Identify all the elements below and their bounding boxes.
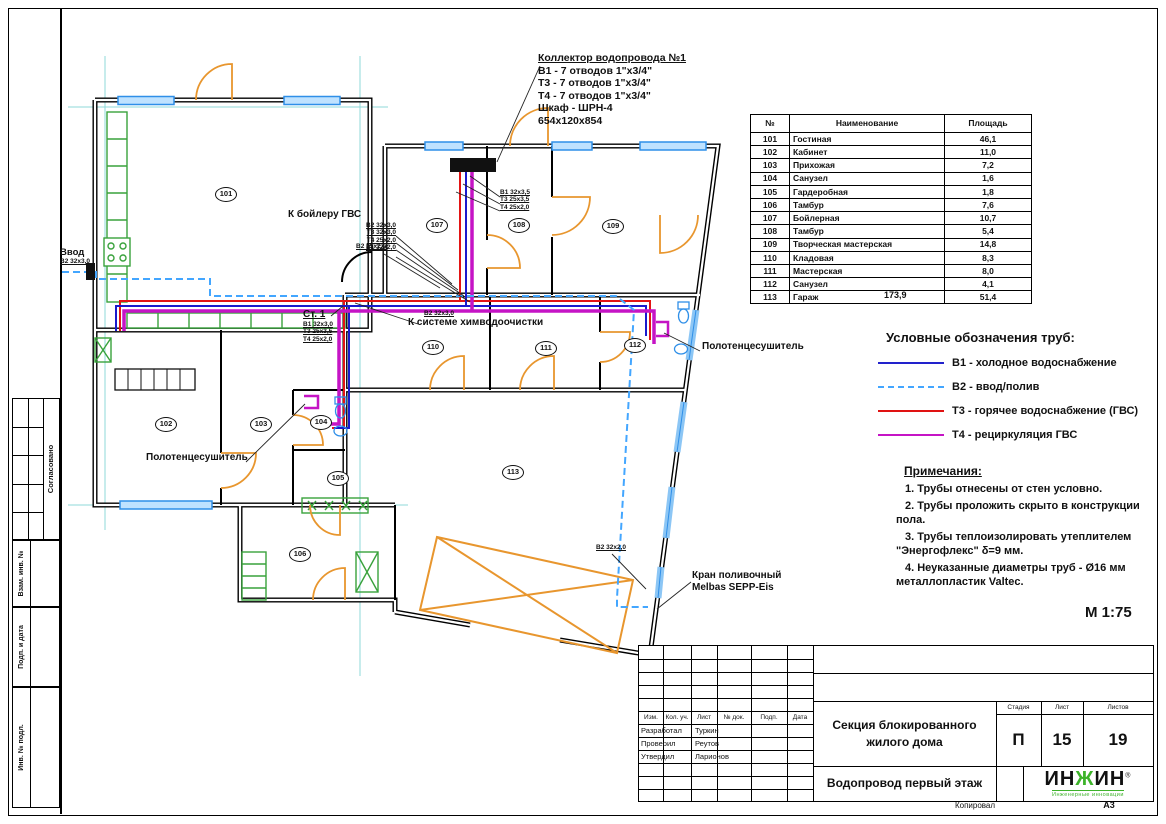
line-sample-t3 [878, 410, 944, 412]
scale-note: М 1:75 [1085, 604, 1132, 621]
tb-role: Утвердил [641, 750, 691, 763]
rooms-table: № Наименование Площадь 101Гостиная46,1 1… [750, 114, 1032, 304]
towel-rail-note-left: Полотенцесушитель [146, 452, 248, 464]
legend-item: Т3 - горячее водоснабжение (ГВС) [878, 405, 1158, 417]
room-label: 111 [535, 341, 557, 356]
title-block: Изм. Кол. уч. Лист № док. Подп. Дата Раз… [638, 645, 1154, 802]
towel-rails [304, 322, 668, 408]
legend-title: Условные обозначения труб: [886, 330, 1158, 345]
sheets-label: Листов [1083, 701, 1153, 714]
room-label: 105 [327, 471, 349, 486]
line-sample-t4 [878, 434, 944, 436]
table-row: 109Творческая мастерская14,8 [751, 238, 1032, 251]
legend-item: В2 - ввод/полив [878, 381, 1158, 393]
walls [95, 100, 718, 655]
collector-note: Коллектор водопровода №1 В1 - 7 отводов … [538, 52, 686, 128]
sheet-label: Лист [1041, 701, 1083, 714]
table-row: 103Прихожая7,2 [751, 159, 1032, 172]
inlet-note: Ввод В2 32х3,0 [60, 247, 90, 266]
collector-box [450, 158, 496, 172]
sheet-title: Водопровод первый этаж [815, 767, 994, 799]
table-row: 105Гардеробная1,8 [751, 185, 1032, 198]
tb-name: Реутов [695, 737, 749, 750]
pipe-legend: Условные обозначения труб: В1 - холодное… [878, 330, 1158, 441]
pipe-b2-inlet [62, 272, 648, 607]
tb-col: Подп. [751, 711, 787, 724]
car-space-symbol [420, 537, 633, 653]
drawing-sheet: Согласовано Взам. инв. № Подп. и дата Ин… [0, 0, 1166, 824]
towel-rail-note-right: Полотенцесушитель [702, 341, 804, 353]
logo-subtitle: Инженерные инновации [1052, 790, 1124, 798]
tb-col: № док. [717, 711, 751, 724]
room-label: 113 [502, 465, 524, 480]
sheet-value: 15 [1041, 714, 1083, 766]
note-item: 2. Трубы проложить скрыто в конструкции … [896, 499, 1158, 528]
table-row: 108Тамбур5,4 [751, 225, 1032, 238]
col-no: № [751, 115, 790, 133]
room-label: 112 [624, 338, 646, 353]
pipe-size-label: В2 25х2,0 [356, 243, 386, 250]
collector-note-title: Коллектор водопровода №1 [538, 52, 686, 65]
area-total: 173,9 [884, 290, 907, 300]
room-label: 106 [289, 547, 311, 562]
tb-role: Разработал [641, 724, 691, 737]
boiler-note: К бойлеру ГВС [288, 209, 361, 221]
logo-text: ИНЖИН® [1045, 769, 1132, 789]
room-label: 103 [250, 417, 272, 432]
table-row: 101Гостиная46,1 [751, 133, 1032, 146]
notes-title: Примечания: [904, 464, 1158, 478]
col-name: Наименование [790, 115, 945, 133]
sheets-value: 19 [1083, 714, 1153, 766]
riser-note: Ст. 1 В1 32х3,0 Т3 25х3,5 Т4 25х2,0 [303, 309, 333, 343]
line-sample-b2 [878, 386, 944, 388]
room-label: 109 [602, 219, 624, 234]
project-title: Секция блокированного жилого дома [815, 703, 994, 764]
windows [118, 97, 706, 599]
table-row: 104Санузел1,6 [751, 172, 1032, 185]
collector-size-labels: В1 32х3,5 Т3 25х3,5 Т4 25х2,0 [500, 189, 530, 211]
legend-item: В1 - холодное водоснабжение [878, 357, 1158, 369]
table-row: 102Кабинет11,0 [751, 146, 1032, 159]
line-sample-b1 [878, 362, 944, 364]
company-logo: ИНЖИН® Инженерные инновации [1023, 766, 1153, 801]
stage-value: П [996, 714, 1041, 766]
table-row: 111Мастерская8,0 [751, 264, 1032, 277]
garden-tap-note: Кран поливочный Melbas SEPP-Eis [692, 570, 781, 594]
tb-role: Проверил [641, 737, 691, 750]
tb-name: Туркин [695, 724, 749, 737]
kitchen-and-equipment [95, 112, 378, 600]
stage-label: Стадия [996, 701, 1041, 714]
room-label: 108 [508, 218, 530, 233]
notes: Примечания: 1. Трубы отнесены от стен ус… [896, 464, 1158, 592]
tb-col: Дата [787, 711, 813, 724]
format-label: А3 [1094, 800, 1124, 810]
room-label: 102 [155, 417, 177, 432]
note-item: 4. Неуказанные диаметры труб - Ø16 мм ме… [896, 561, 1158, 590]
logo-zh-glyph: Ж [1075, 768, 1094, 790]
pipe-t4-recirc [124, 172, 654, 424]
tb-name: Ларионов [695, 750, 749, 763]
legend-item: Т4 - рециркуляция ГВС [878, 429, 1158, 441]
room-label: 110 [422, 340, 444, 355]
room-label: 104 [310, 415, 332, 430]
room-label: 101 [215, 187, 237, 202]
chem-note: В2 32х3,0 К системе химводоочистки [408, 310, 543, 329]
registered-mark: ® [1125, 772, 1131, 779]
table-header-row: № Наименование Площадь [751, 115, 1032, 133]
tb-col: Кол. уч. [663, 711, 691, 724]
table-row: 107Бойлерная10,7 [751, 212, 1032, 225]
table-row: 110Кладовая8,3 [751, 251, 1032, 264]
table-row: 106Тамбур7,6 [751, 198, 1032, 211]
tb-col: Изм. [639, 711, 663, 724]
note-item: 1. Трубы отнесены от стен условно. [896, 482, 1158, 497]
note-item: 3. Трубы теплоизолировать утеплителем "Э… [896, 530, 1158, 559]
kopiroval-label: Копировал [935, 801, 1015, 810]
room-label: 107 [426, 218, 448, 233]
table-row: 112Санузел4,1 [751, 278, 1032, 291]
tb-col: Лист [691, 711, 717, 724]
garage-pipe-label: В2 32х2,0 [596, 544, 626, 551]
col-area: Площадь [945, 115, 1032, 133]
